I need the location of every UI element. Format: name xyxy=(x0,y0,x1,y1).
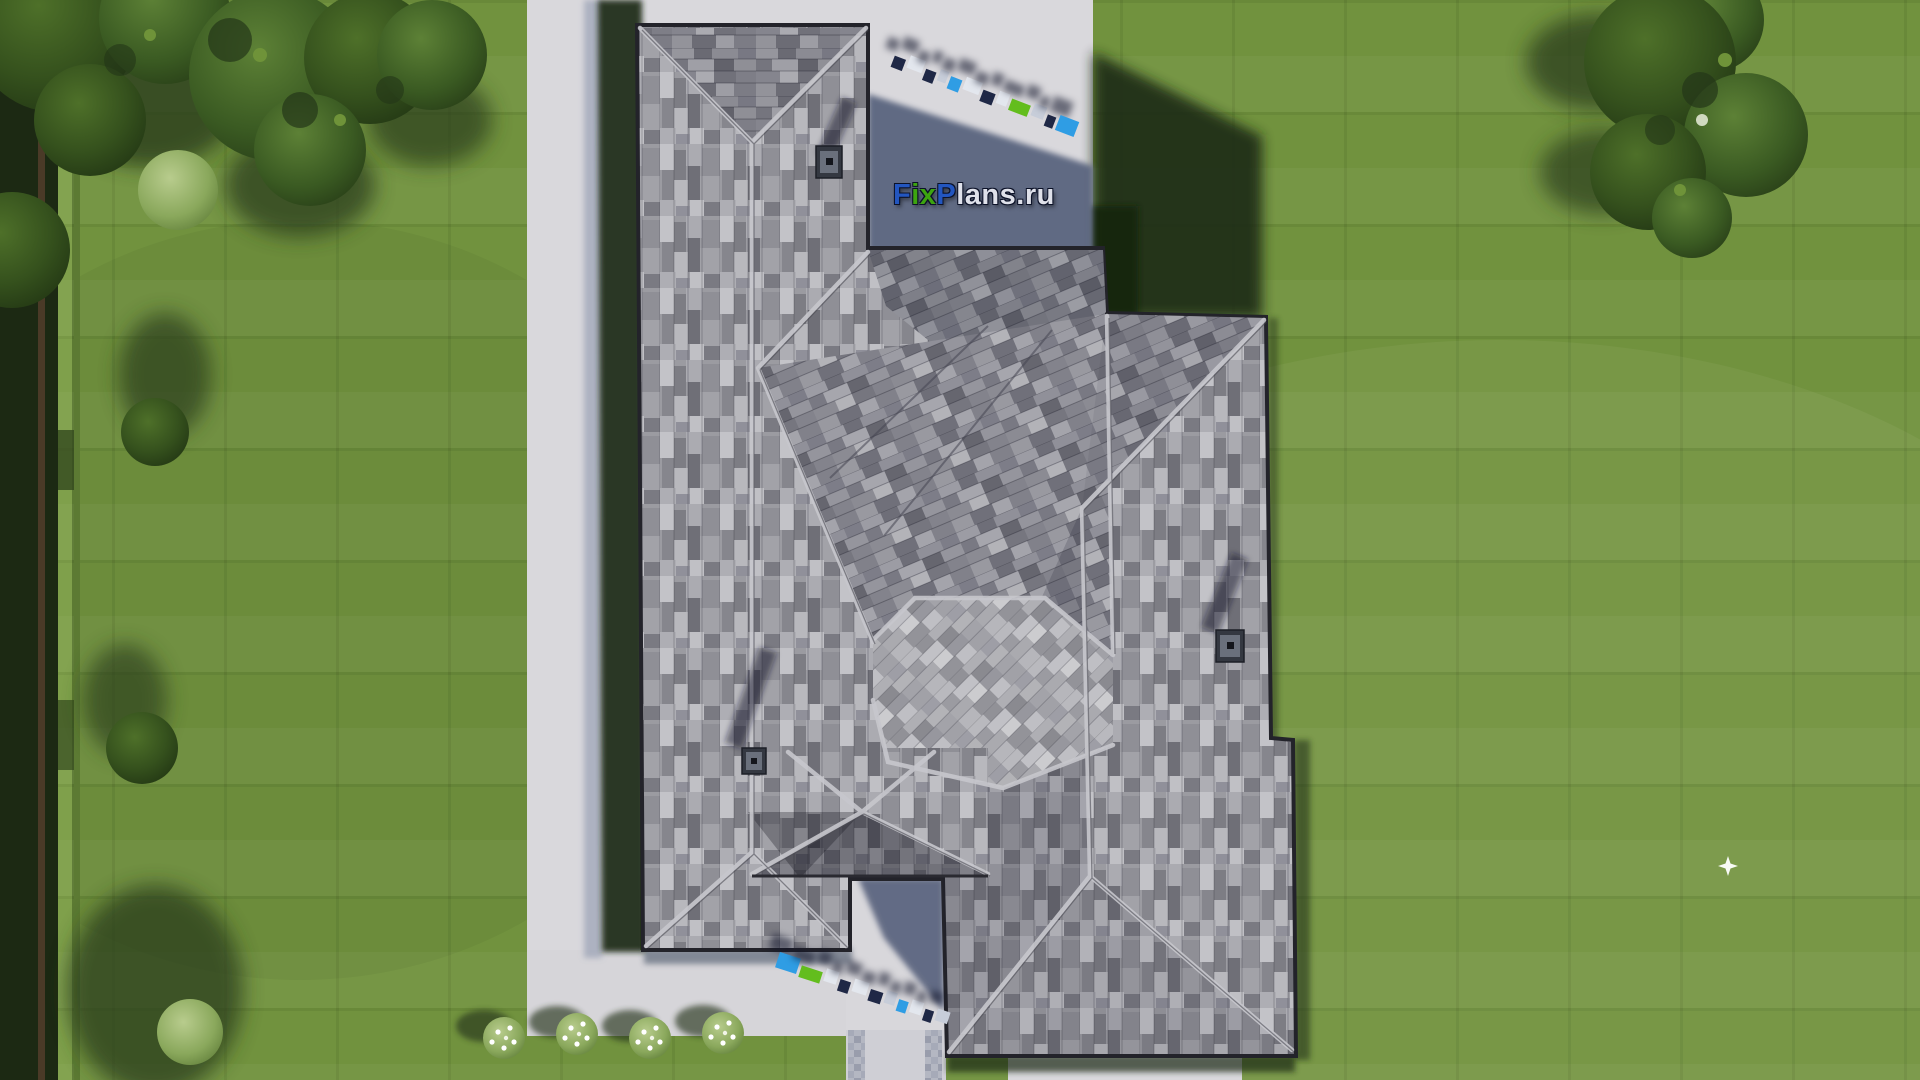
flower-bush xyxy=(629,1017,671,1059)
walkway-paver-band xyxy=(925,1030,942,1080)
letter-block xyxy=(996,91,1011,107)
letter-block xyxy=(798,965,823,983)
letter-block xyxy=(979,90,995,106)
letter-block xyxy=(937,69,950,83)
letter-block xyxy=(891,56,907,72)
bush xyxy=(106,712,178,784)
letter-block xyxy=(1044,114,1057,128)
watermark-letter-f: F xyxy=(893,179,911,211)
watermark-letter-p: P xyxy=(936,179,956,211)
bush-pale xyxy=(138,150,218,230)
watermark-text: FixPlans.ru xyxy=(893,181,1055,210)
letter-block xyxy=(896,999,909,1014)
letter-block xyxy=(867,989,883,1004)
watermark-letters-rest: lans.ru xyxy=(956,179,1055,211)
flower-bush xyxy=(556,1013,598,1055)
letter-block xyxy=(823,968,839,984)
flower-bush xyxy=(702,1012,744,1054)
letter-block xyxy=(922,1009,934,1023)
flower-bush xyxy=(483,1017,525,1059)
render-canvas xyxy=(0,0,1920,1080)
aerial-render-scene: FixPlans.ru xyxy=(0,0,1920,1080)
letter-block xyxy=(851,979,869,996)
watermark-letters-ix: ix xyxy=(911,179,936,211)
letter-block xyxy=(1008,99,1031,117)
letter-block xyxy=(909,999,924,1015)
bush xyxy=(121,398,189,466)
fence-line xyxy=(38,0,45,1080)
letter-block xyxy=(837,979,851,994)
letter-block xyxy=(883,990,897,1006)
walkway-paver-band xyxy=(848,1030,865,1080)
bush-pale xyxy=(157,999,223,1065)
letter-block xyxy=(947,76,963,92)
